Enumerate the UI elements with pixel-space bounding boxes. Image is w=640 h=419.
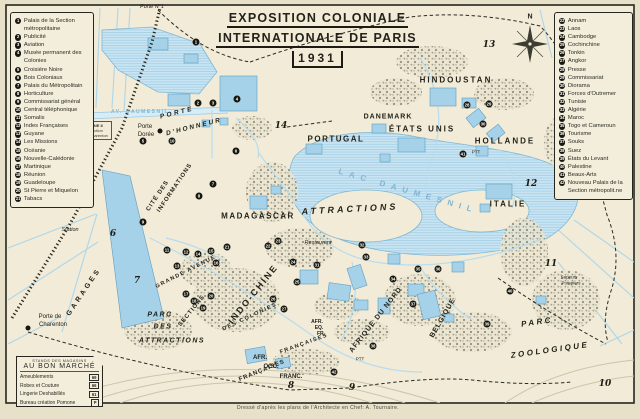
legend-item: 27 Angkor [559, 57, 630, 65]
bon-marche-row-badge: P [91, 399, 99, 406]
legend-item-number: 25 [559, 42, 565, 48]
legend-item-number: 31 [559, 91, 565, 97]
map-marker: 41 [460, 151, 467, 158]
map-marker: 14 [195, 251, 202, 258]
map-marker: 22 [265, 243, 272, 250]
legend-item-label: Guadeloupe [24, 179, 56, 187]
legend-item: 9 Commissariat général [15, 98, 91, 106]
legend-item-label: Bois Coloniaux [24, 74, 63, 82]
legend-item-number: 14 [15, 139, 21, 145]
legend-item: 29 Commissariat [559, 74, 630, 82]
legend-item-number: 41 [559, 172, 565, 178]
legend-item-label: Souks [568, 138, 584, 146]
legend-item-number: 15 [15, 148, 21, 154]
map-marker: 9 [140, 219, 147, 226]
map-marker: 26 [270, 296, 277, 303]
map-marker: 2 [195, 100, 202, 107]
legend-item: 7 Palais du Métropolitain [15, 82, 91, 90]
legend-item: 33 Algérie [559, 106, 630, 114]
bon-marche-row-label: Bureau création Pomone [20, 399, 75, 408]
map-marker: 13 [174, 263, 181, 270]
legend-item-label: Palais du Métropolitain [24, 82, 83, 90]
bon-marche-row-label: Ameublements [20, 373, 53, 382]
legend-item: 16 Nouvelle-Calédonie [15, 155, 91, 163]
legend-item: 14 Les Missions [15, 138, 91, 146]
legend-item: 22 Annam [559, 17, 630, 25]
legend-item: 20 St Pierre et Miquelon [15, 187, 91, 195]
legend-item-label: Tunisie [568, 98, 586, 106]
legend-item-label: Suez [568, 147, 581, 155]
legend-item-label: Croisière Noire [24, 66, 63, 74]
map-marker: 36 [435, 266, 442, 273]
legend-item: 3 Aviation [15, 41, 91, 49]
legend-item-label: Les Missions [24, 138, 58, 146]
legend-item-label: Horticulture [24, 90, 54, 98]
map-marker: 5 [140, 138, 147, 145]
legend-item: 37 Souks [559, 138, 630, 146]
legend-item-number: 7 [15, 83, 21, 89]
map-marker: 19 [200, 305, 207, 312]
legend-item: 17 Martinique [15, 163, 91, 171]
legend-item: 24 Cambodge [559, 33, 630, 41]
legend-item: 8 Horticulture [15, 90, 91, 98]
legend-item-number: 26 [559, 50, 565, 56]
title-line-1: EXPOSITION COLONIALE [227, 11, 409, 28]
legend-item: 38 Suez [559, 147, 630, 155]
map-marker: 11 [164, 247, 171, 254]
legend-item-number: 9 [15, 99, 21, 105]
legend-item-label: Commissariat général [24, 98, 80, 106]
legend-item: 5 Croisière Noire [15, 66, 91, 74]
bon-marche-row: Robes et Couture 66 [20, 382, 99, 391]
legend-item-label: Algérie [568, 106, 586, 114]
map-marker: 1 [193, 39, 200, 46]
legend-item-number: 22 [559, 18, 565, 24]
map-marker: 7 [210, 181, 217, 188]
legend-item: 28 Presse [559, 66, 630, 74]
legend-item-number: 3 [15, 42, 21, 48]
map-marker: 31 [314, 262, 321, 269]
legend-item-label: Somalis [24, 114, 45, 122]
legend-item-label: Laos [568, 25, 581, 33]
bon-marche-row-label: Lingerie Deshabillés [20, 390, 65, 399]
legend-item-number: 5 [15, 67, 21, 73]
map-marker: 27 [281, 306, 288, 313]
map-marker: 6 [233, 148, 240, 155]
legend-item: 18 Réunion [15, 171, 91, 179]
legend-right: 22 Annam 23 Laos 24 Cambodge 25 Cochinch… [554, 12, 633, 200]
legend-item-label: Diorama [568, 82, 590, 90]
legend-item: 35 Togo et Cameroun [559, 122, 630, 130]
legend-item: 11 Somalis [15, 114, 91, 122]
legend-left: 1 Palais de la Section métropolitaine 2 … [10, 12, 94, 208]
legend-item-label: Aviation [24, 41, 45, 49]
map-marker: 33 [363, 254, 370, 261]
legend-item-label: Guyane [24, 130, 44, 138]
map-marker: 16 [213, 260, 220, 267]
legend-item-label: Central téléphonique [24, 106, 78, 114]
legend-item-label: Annam [568, 17, 586, 25]
legend-item: 23 Laos [559, 25, 630, 33]
bon-marche-row-badge: 66 [89, 382, 99, 389]
map-marker: 8 [196, 193, 203, 200]
legend-item: 26 Tonkin [559, 49, 630, 57]
map-marker: 25 [294, 279, 301, 286]
map-marker: 40 [507, 288, 514, 295]
map-marker: 38 [370, 343, 377, 350]
legend-item-number: 11 [15, 115, 21, 121]
legend-item-label: Presse [568, 66, 586, 74]
legend-item-number: 42 [559, 180, 565, 186]
legend-item: 4 Musée permanent des Colonies [15, 49, 91, 65]
title-year: 1931 [292, 51, 343, 68]
legend-item-label: Tonkin [568, 49, 585, 57]
legend-item: 21 Tabacs [15, 195, 91, 203]
bon-marche-row-badge: 61 [89, 391, 99, 398]
legend-item-number: 34 [559, 115, 565, 121]
legend-item: 31 Forces d'Outremer [559, 90, 630, 98]
title-line-2: INTERNATIONALE DE PARIS [216, 31, 419, 48]
map-marker: 12 [183, 249, 190, 256]
map-marker: 18 [191, 298, 198, 305]
legend-item: 36 Tourisme [559, 130, 630, 138]
map-marker: 28 [464, 102, 471, 109]
legend-item-number: 1 [15, 18, 21, 24]
legend-item: 2 Publicité [15, 33, 91, 41]
legend-item: 25 Cochinchine [559, 41, 630, 49]
legend-item: 10 Central téléphonique [15, 106, 91, 114]
legend-item-label: St Pierre et Miquelon [24, 187, 78, 195]
bon-marche-box: STANDS DES MAGASINS AU BON MARCHÉ Ameubl… [16, 356, 103, 407]
map-marker: 34 [390, 276, 397, 283]
bon-marche-row: Bureau création Pomone P [20, 399, 99, 408]
legend-item-number: 32 [559, 99, 565, 105]
legend-item: 40 Palestine [559, 163, 630, 171]
legend-item-label: Beaux-Arts [568, 171, 597, 179]
bon-marche-row-label: Robes et Couture [20, 382, 59, 391]
bon-marche-row-badge: 69 [89, 374, 99, 381]
legend-item-number: 21 [15, 196, 21, 202]
legend-item-number: 4 [15, 50, 21, 56]
map-marker: 17 [183, 291, 190, 298]
legend-item-label: Maroc [568, 114, 584, 122]
legend-item-label: Palestine [568, 163, 592, 171]
legend-item-number: 29 [559, 75, 565, 81]
legend-item-number: 23 [559, 26, 565, 32]
legend-item-label: Commissariat [568, 74, 603, 82]
legend-item-number: 24 [559, 34, 565, 40]
legend-item-number: 28 [559, 67, 565, 73]
legend-item: 34 Maroc [559, 114, 630, 122]
legend-item-label: Martinique [24, 163, 51, 171]
map-marker: 23 [275, 238, 282, 245]
legend-item: 30 Diorama [559, 82, 630, 90]
map-marker: 37 [410, 301, 417, 308]
legend-item-label: Cochinchine [568, 41, 600, 49]
legend-item-number: 2 [15, 34, 21, 40]
map-marker: 24 [290, 259, 297, 266]
legend-item-number: 10 [15, 107, 21, 113]
legend-item-label: Publicité [24, 33, 46, 41]
map-marker: 42 [331, 369, 338, 376]
legend-item-number: 36 [559, 131, 565, 137]
legend-item: 39 États du Levant [559, 155, 630, 163]
legend-item-number: 27 [559, 58, 565, 64]
map-marker: 21 [224, 244, 231, 251]
legend-item-number: 33 [559, 107, 565, 113]
legend-item-label: Tourisme [568, 130, 592, 138]
bon-marche-row: Ameublements 69 [20, 373, 99, 382]
map-page: EXPOSITION COLONIALE INTERNATIONALE DE P… [0, 0, 640, 419]
legend-item: 42 Nouveau Palais de la Section métropol… [559, 179, 630, 195]
attribution-line: Dressé d'après les plans de l'Architecte… [237, 405, 399, 411]
map-marker: 30 [480, 121, 487, 128]
legend-item-label: Angkor [568, 57, 586, 65]
legend-item: 19 Guadeloupe [15, 179, 91, 187]
legend-item-label: Nouvelle-Calédonie [24, 155, 75, 163]
legend-item-label: Océanie [24, 147, 46, 155]
legend-item: 12 Indes Françaises [15, 122, 91, 130]
legend-item: 15 Océanie [15, 147, 91, 155]
legend-item-number: 12 [15, 123, 21, 129]
legend-item-label: Cambodge [568, 33, 596, 41]
legend-item: 13 Guyane [15, 130, 91, 138]
legend-item-label: Réunion [24, 171, 46, 179]
bon-marche-rows: Ameublements 69 Robes et Couture 66 Ling… [20, 373, 99, 407]
legend-item-number: 6 [15, 75, 21, 81]
legend-item: 1 Palais de la Section métropolitaine [15, 17, 91, 33]
bon-marche-row: Lingerie Deshabillés 61 [20, 390, 99, 399]
map-marker: 20 [208, 293, 215, 300]
legend-item-number: 18 [15, 172, 21, 178]
map-marker: 4 [234, 96, 241, 103]
map-marker: 39 [484, 321, 491, 328]
map-marker: 15 [208, 248, 215, 255]
legend-item-number: 38 [559, 148, 565, 154]
legend-item-label: États du Levant [568, 155, 608, 163]
legend-item: 32 Tunisie [559, 98, 630, 106]
legend-item-label: Palais de la Section métropolitaine [24, 17, 91, 33]
map-marker: 3 [210, 100, 217, 107]
legend-item-number: 19 [15, 180, 21, 186]
legend-item-number: 37 [559, 139, 565, 145]
legend-item: 6 Bois Coloniaux [15, 74, 91, 82]
bon-marche-header: AU BON MARCHÉ [20, 363, 99, 372]
legend-item-label: Forces d'Outremer [568, 90, 616, 98]
legend-item-number: 35 [559, 123, 565, 129]
map-title: EXPOSITION COLONIALE INTERNATIONALE DE P… [215, 9, 420, 68]
legend-item-number: 13 [15, 131, 21, 137]
legend-item-number: 17 [15, 164, 21, 170]
map-marker: 29 [486, 101, 493, 108]
legend-item-number: 40 [559, 164, 565, 170]
map-marker: 35 [415, 266, 422, 273]
legend-item-number: 8 [15, 91, 21, 97]
map-marker: 10 [169, 138, 176, 145]
legend-item-label: Indes Françaises [24, 122, 68, 130]
map-marker: 32 [359, 242, 366, 249]
legend-item-label: Nouveau Palais de la Section métropolit.… [568, 179, 630, 195]
legend-item-number: 16 [15, 156, 21, 162]
legend-item-number: 20 [15, 188, 21, 194]
legend-item-number: 30 [559, 83, 565, 89]
legend-item-label: Tabacs [24, 195, 42, 203]
legend-item-number: 39 [559, 156, 565, 162]
legend-item: 41 Beaux-Arts [559, 171, 630, 179]
legend-item-label: Musée permanent des Colonies [24, 49, 91, 65]
legend-item-label: Togo et Cameroun [568, 122, 616, 130]
